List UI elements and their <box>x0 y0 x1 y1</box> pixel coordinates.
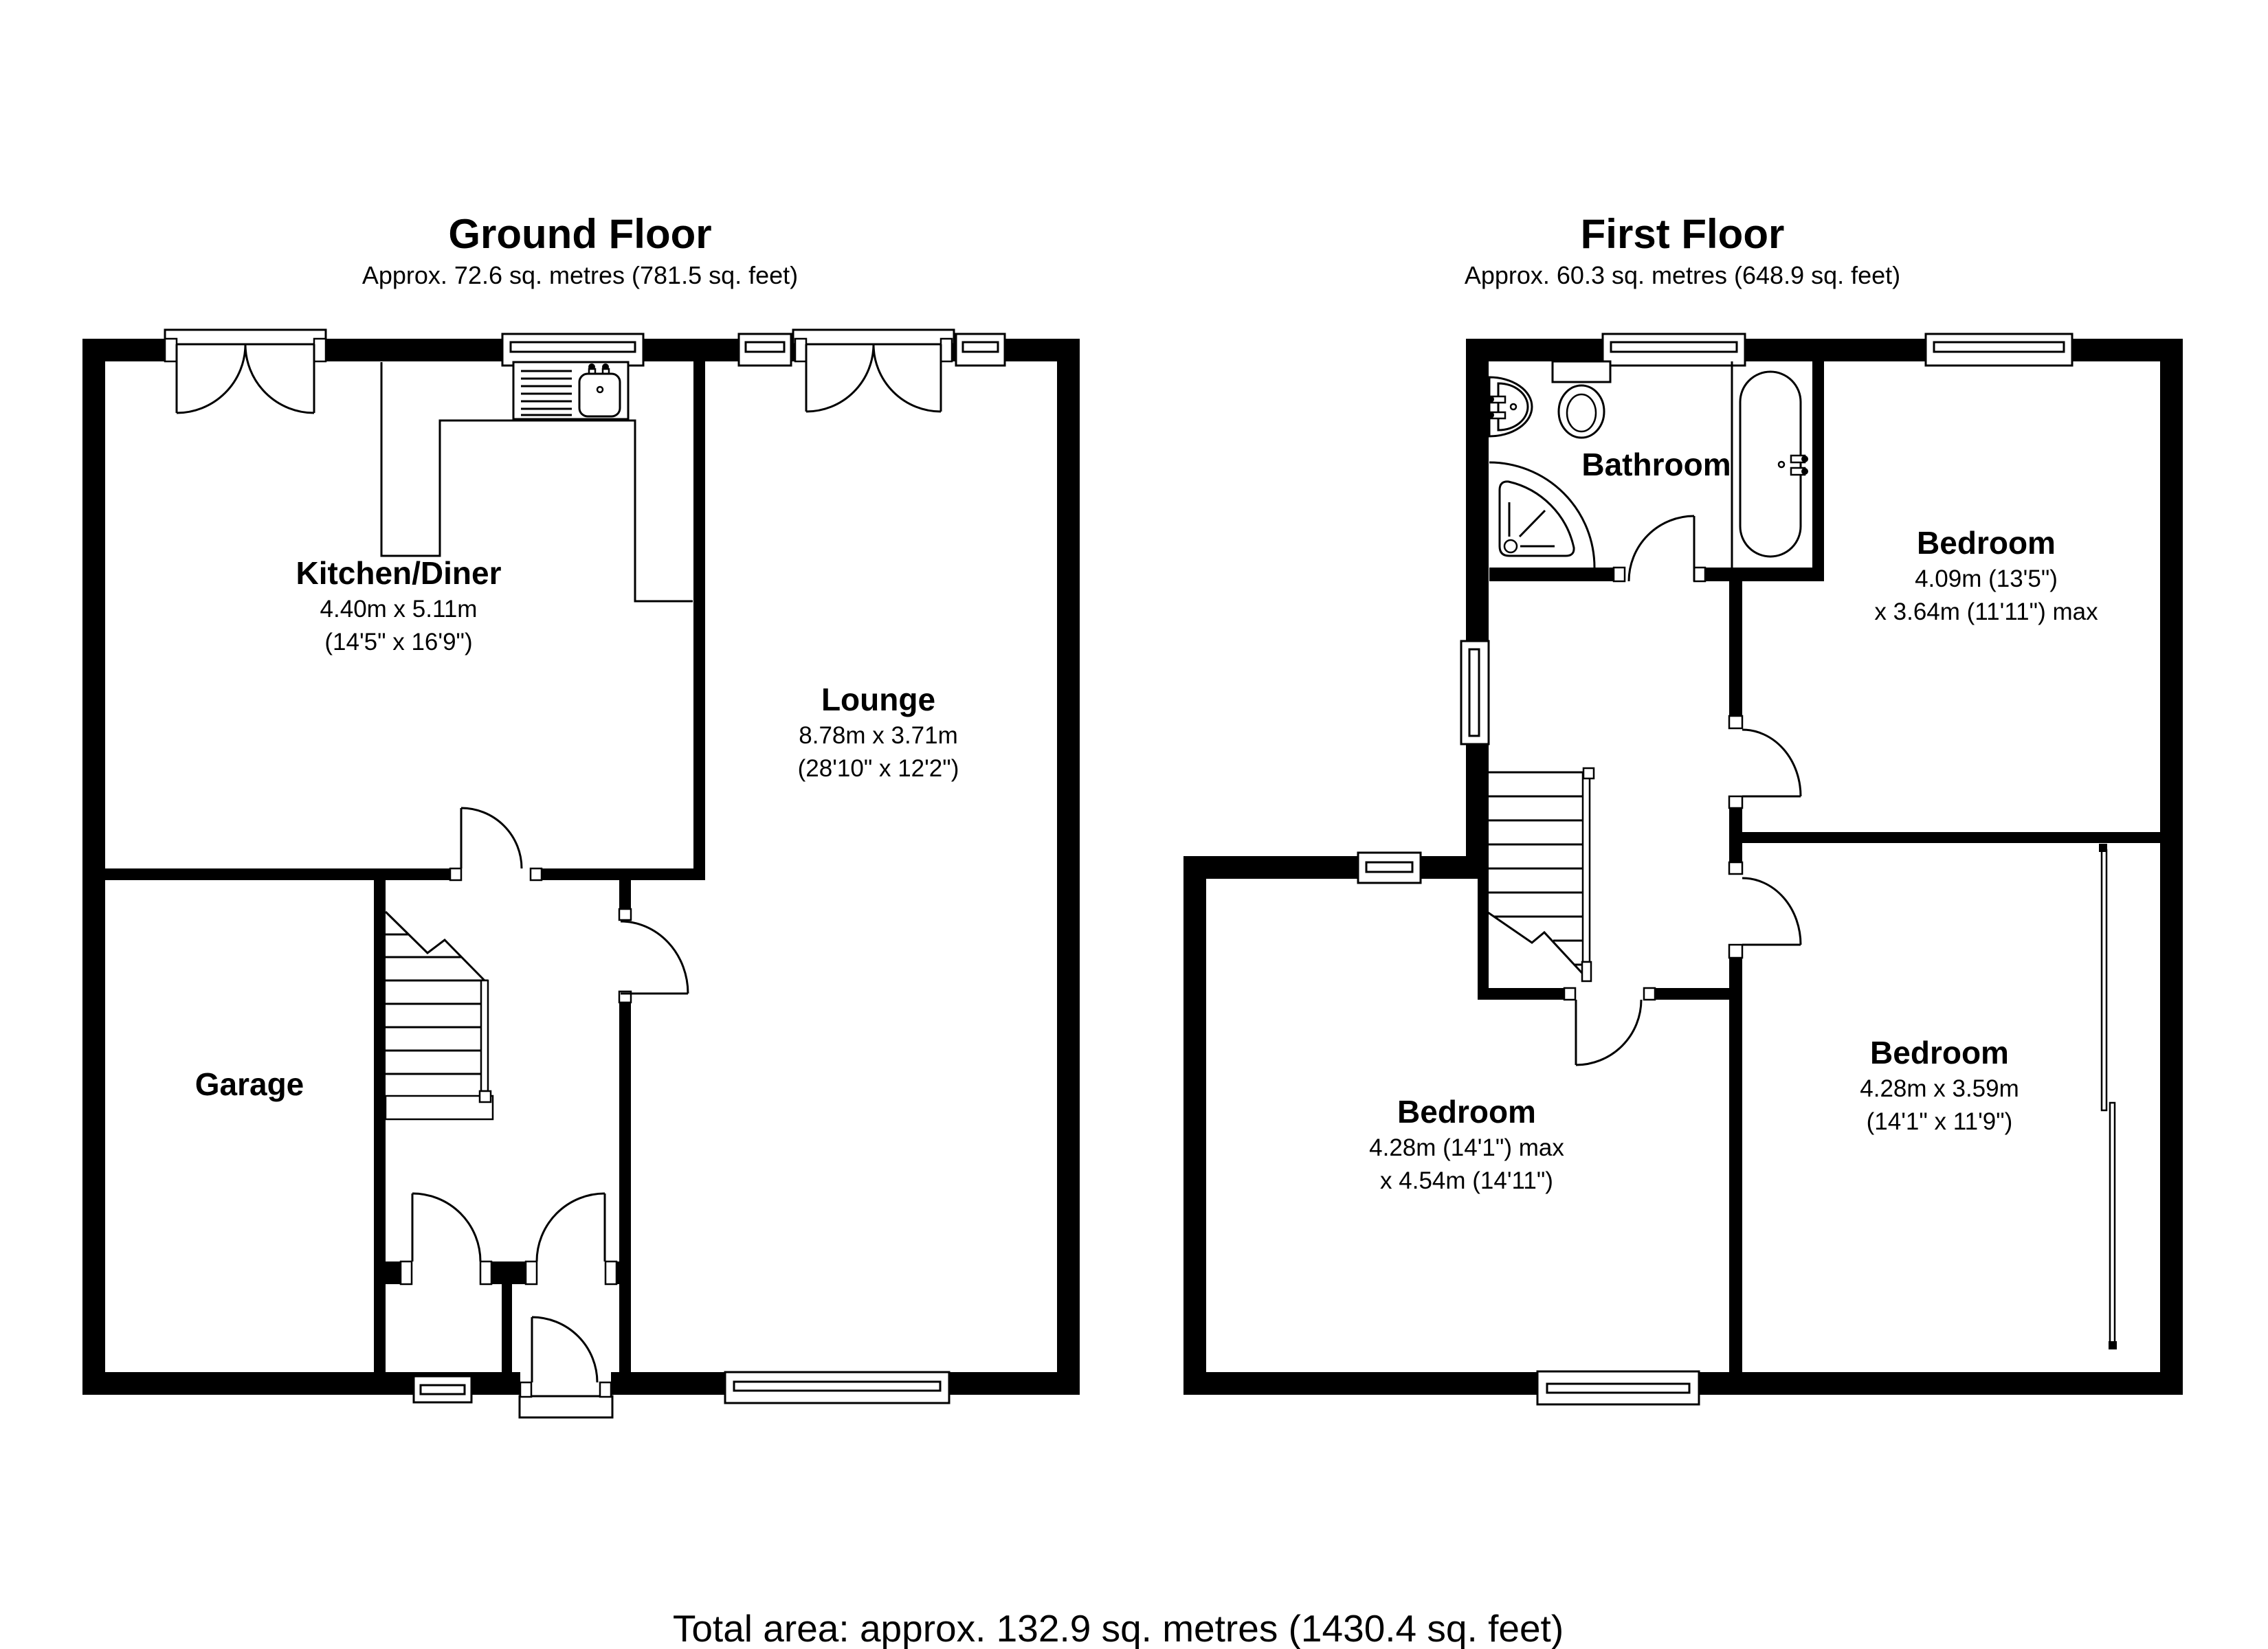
svg-text:Approx. 60.3 sq. metres (648.9: Approx. 60.3 sq. metres (648.9 sq. feet) <box>1465 261 1900 289</box>
svg-text:4.40m x 5.11m: 4.40m x 5.11m <box>320 596 478 622</box>
svg-text:Bedroom: Bedroom <box>1397 1094 1536 1130</box>
svg-text:Total area: approx. 132.9 sq.: Total area: approx. 132.9 sq. metres (14… <box>673 1607 1564 1649</box>
svg-text:Ground Floor: Ground Floor <box>448 211 711 257</box>
svg-text:(14'5" x 16'9"): (14'5" x 16'9") <box>324 629 472 655</box>
svg-text:Lounge: Lounge <box>821 682 935 717</box>
svg-text:Approx. 72.6 sq. metres (781.5: Approx. 72.6 sq. metres (781.5 sq. feet) <box>362 261 798 289</box>
svg-text:(28'10" x 12'2"): (28'10" x 12'2") <box>798 755 959 782</box>
svg-text:Bedroom: Bedroom <box>1917 525 2056 561</box>
svg-text:Kitchen/Diner: Kitchen/Diner <box>296 555 501 591</box>
svg-text:4.28m (14'1") max: 4.28m (14'1") max <box>1369 1134 1564 1161</box>
svg-text:8.78m x 3.71m: 8.78m x 3.71m <box>799 722 958 749</box>
svg-text:Garage: Garage <box>195 1066 304 1102</box>
svg-text:4.09m (13'5"): 4.09m (13'5") <box>1915 565 2058 592</box>
svg-text:Bedroom: Bedroom <box>1870 1035 2009 1070</box>
svg-text:First Floor: First Floor <box>1581 211 1785 257</box>
svg-text:4.28m x 3.59m: 4.28m x 3.59m <box>1860 1075 2019 1102</box>
svg-text:(14'1" x 11'9"): (14'1" x 11'9") <box>1867 1108 2013 1135</box>
svg-text:x 4.54m (14'11"): x 4.54m (14'11") <box>1380 1167 1553 1194</box>
svg-text:Bathroom: Bathroom <box>1581 447 1731 482</box>
svg-text:x 3.64m (11'11") max: x 3.64m (11'11") max <box>1874 598 2098 625</box>
